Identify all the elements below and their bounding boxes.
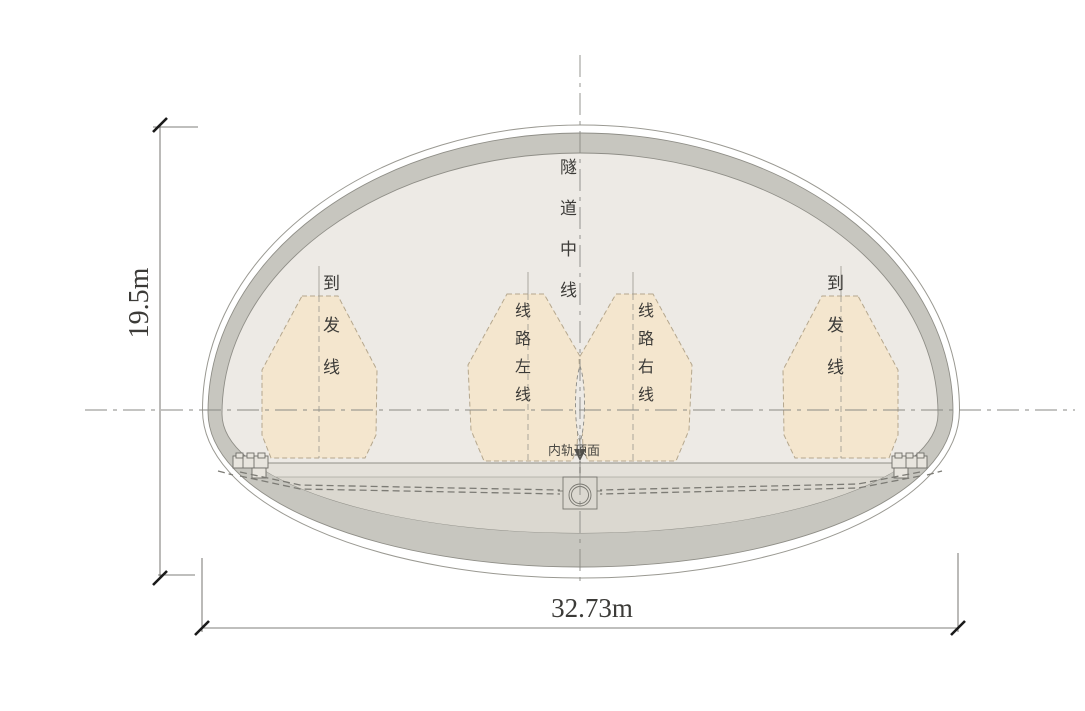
label-tunnel-centerline: 隧道中线 — [558, 158, 575, 322]
label-inner-rail-top-surface: 内轨顶面 — [548, 444, 600, 457]
dimension-width-label: 32.73m — [512, 595, 672, 622]
label-route-left-line: 线路左线 — [512, 302, 528, 414]
label-arrival-departure-right: 到发线 — [825, 274, 842, 400]
label-arrival-departure-left: 到发线 — [321, 274, 338, 400]
dimension-height-label: 19.5m — [126, 223, 154, 383]
dimension-height — [153, 118, 198, 585]
label-route-right-line: 线路右线 — [635, 302, 651, 414]
tunnel-cross-section-diagram: 隧道中线 到发线 线路左线 线路右线 到发线 内轨顶面 19.5m 32.73m — [0, 0, 1085, 711]
